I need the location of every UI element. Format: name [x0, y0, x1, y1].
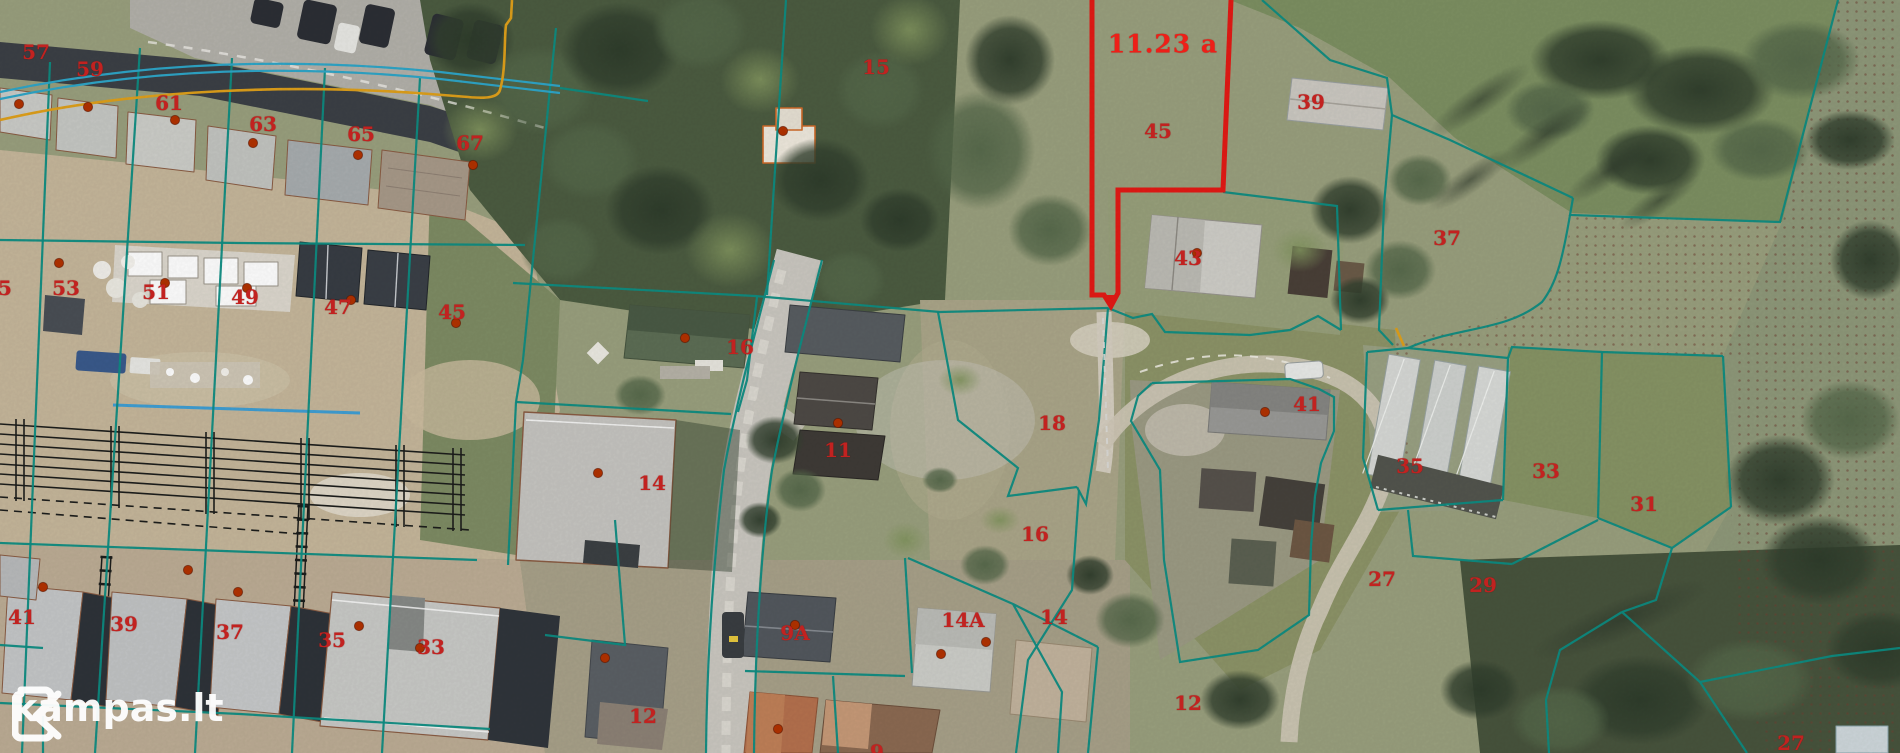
aerial-map[interactable]: 5759616365675535149474515164539374341181… — [0, 0, 1900, 753]
photo-grain — [0, 0, 1900, 753]
kampas-logo[interactable]: kampas.lt — [12, 686, 224, 730]
map-canvas — [0, 0, 1900, 753]
corner-house-icon — [12, 686, 64, 742]
